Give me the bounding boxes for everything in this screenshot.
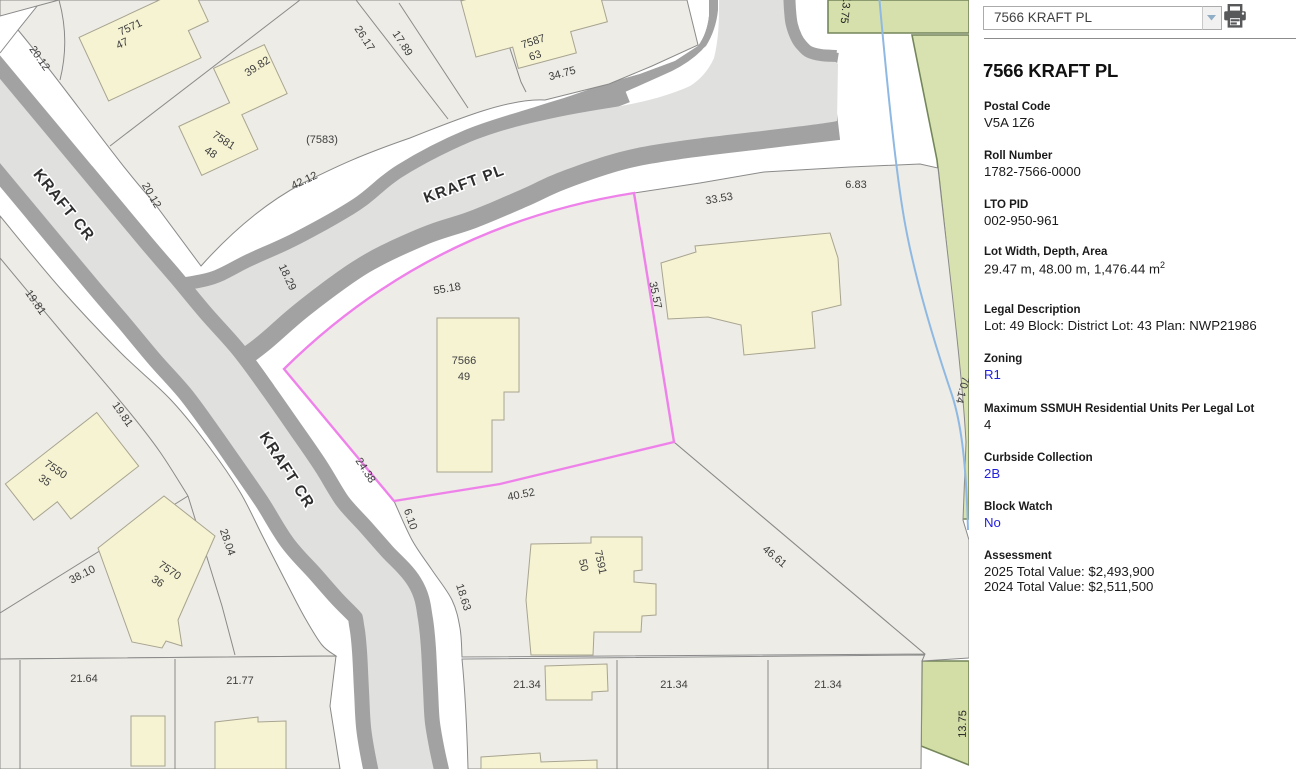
svg-text:21.77: 21.77 — [226, 675, 254, 687]
svg-text:13.75: 13.75 — [838, 0, 853, 24]
svg-text:49: 49 — [458, 371, 470, 383]
svg-text:6.83: 6.83 — [845, 179, 866, 191]
svg-text:13.75: 13.75 — [957, 710, 969, 738]
svg-text:21.34: 21.34 — [660, 679, 688, 691]
svg-text:(7583): (7583) — [306, 134, 338, 146]
svg-text:21.34: 21.34 — [814, 679, 842, 691]
svg-text:21.34: 21.34 — [513, 679, 541, 691]
svg-text:7566: 7566 — [452, 355, 476, 367]
svg-text:21.64: 21.64 — [70, 673, 98, 685]
svg-text:50: 50 — [576, 558, 590, 572]
